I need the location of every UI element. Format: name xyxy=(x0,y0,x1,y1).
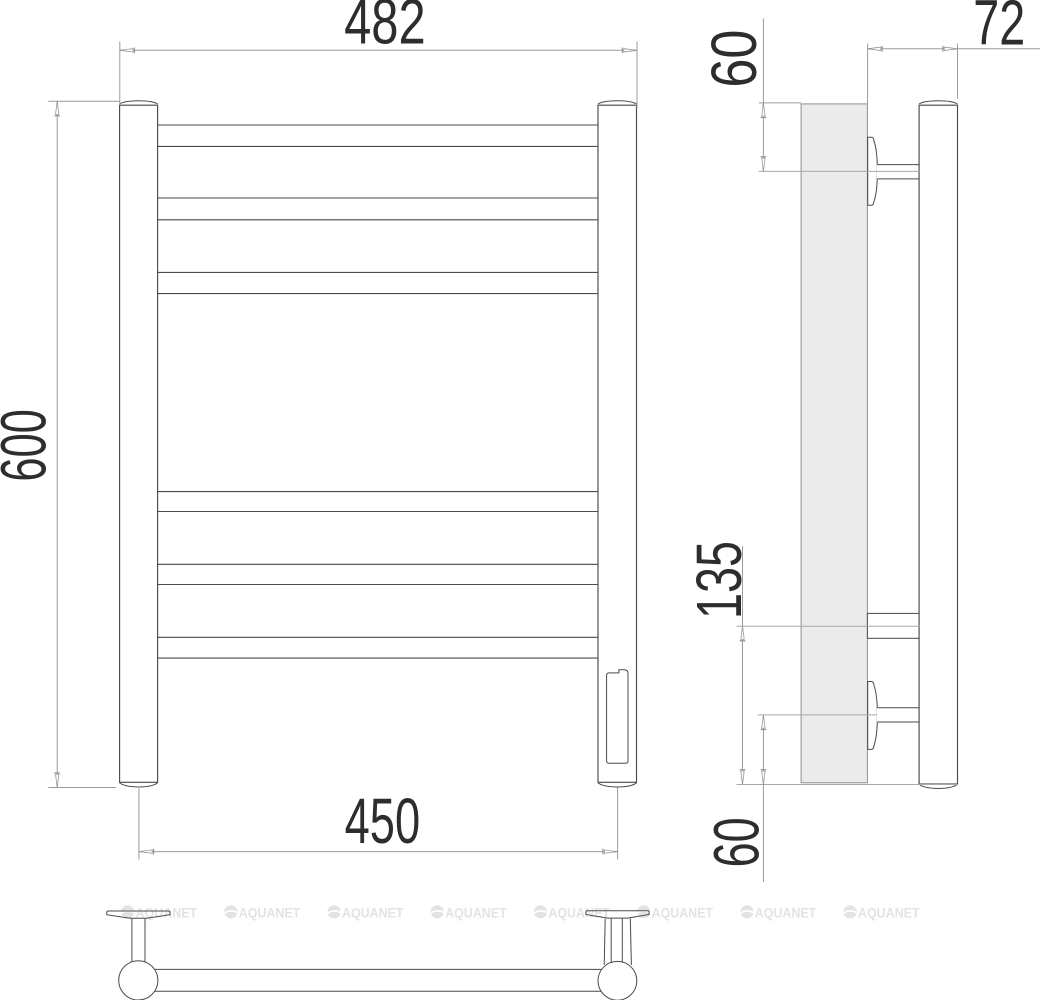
svg-text:450: 450 xyxy=(345,785,421,857)
svg-text:72: 72 xyxy=(973,0,1025,59)
svg-text:60: 60 xyxy=(698,30,770,88)
svg-text:135: 135 xyxy=(683,541,755,619)
svg-text:482: 482 xyxy=(344,0,426,58)
svg-text:60: 60 xyxy=(700,817,772,867)
svg-text:600: 600 xyxy=(0,409,60,482)
